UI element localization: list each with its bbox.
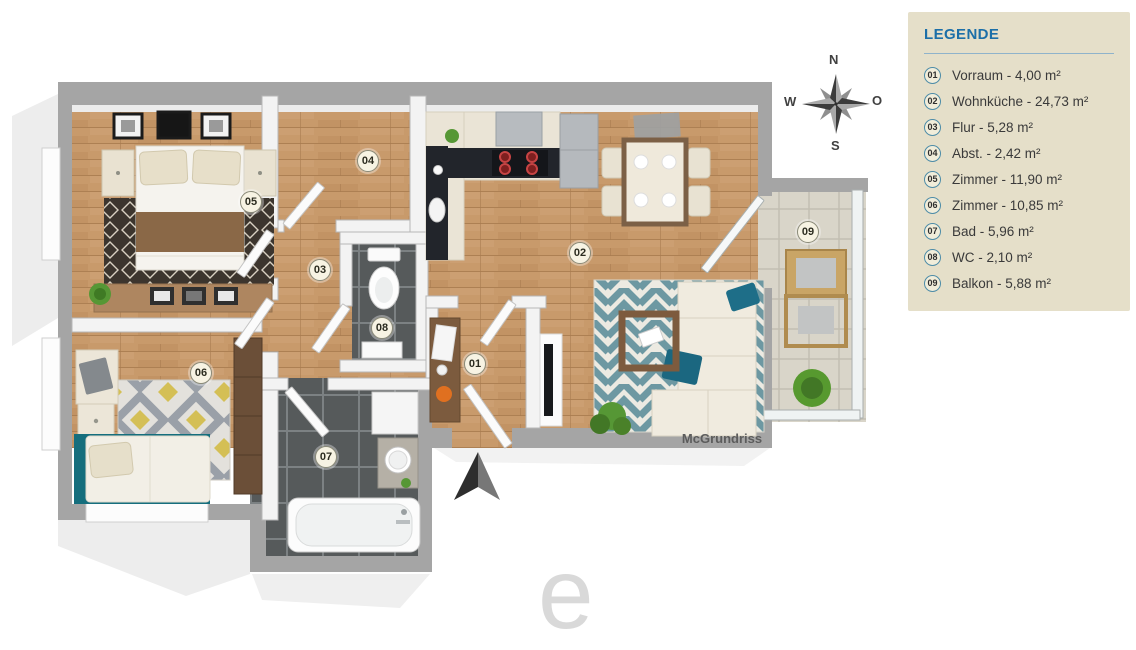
legend-item: 07 Bad - 5,96 m² [924, 223, 1114, 240]
compass-south-label: S [831, 138, 840, 153]
legend-item: 01 Vorraum - 4,00 m² [924, 67, 1114, 84]
room-badge-06: 06 [190, 362, 212, 384]
kitchen-sink [429, 198, 445, 222]
legend-label: Zimmer - 11,90 m² [952, 172, 1062, 187]
legend-badge: 01 [924, 67, 941, 84]
legend-item: 08 WC - 2,10 m² [924, 249, 1114, 266]
single-bed [74, 434, 210, 504]
legend-badge: 07 [924, 223, 941, 240]
legend-panel: LEGENDE 01 Vorraum - 4,00 m² 02 Wohnküch… [908, 12, 1130, 311]
dining-table [624, 140, 686, 224]
fridge [560, 114, 598, 188]
legend-badge: 03 [924, 119, 941, 136]
bath-cabinet [372, 392, 418, 434]
legend-item: 06 Zimmer - 10,85 m² [924, 197, 1114, 214]
wall-brand-label: McGrundriss [682, 431, 762, 446]
compass-rose: N S W O [786, 56, 886, 152]
legend-label: Balkon - 5,88 m² [952, 276, 1051, 291]
legend-badge: 09 [924, 275, 941, 292]
bathtub [288, 498, 420, 552]
legend-badge: 04 [924, 145, 941, 162]
legend-item: 03 Flur - 5,28 m² [924, 119, 1114, 136]
legend-label: WC - 2,10 m² [952, 250, 1032, 265]
double-bed [136, 146, 244, 270]
room-badge-09: 09 [797, 221, 819, 243]
legend-label: Flur - 5,28 m² [952, 120, 1033, 135]
tv [544, 344, 553, 416]
legend-badge: 02 [924, 93, 941, 110]
legend-label: Wohnküche - 24,73 m² [952, 94, 1088, 109]
legend-badge: 05 [924, 171, 941, 188]
floorplan-page: { "legend": { "title": "LEGENDE", "items… [0, 0, 1136, 639]
legend-badge: 08 [924, 249, 941, 266]
room-badge-07: 07 [315, 446, 337, 468]
plant [401, 478, 411, 488]
legend-title: LEGENDE [924, 26, 1114, 43]
toilet-tank [368, 248, 400, 261]
room-badge-04: 04 [357, 150, 379, 172]
room-badge-02: 02 [569, 242, 591, 264]
compass-east-label: O [872, 93, 882, 108]
legend-label: Bad - 5,96 m² [952, 224, 1034, 239]
compass-north-label: N [829, 52, 838, 67]
legend-item: 09 Balkon - 5,88 m² [924, 275, 1114, 292]
doormat [633, 112, 681, 139]
legend-label: Zimmer - 10,85 m² [952, 198, 1063, 213]
legend-item: 02 Wohnküche - 24,73 m² [924, 93, 1114, 110]
wall-pictures [114, 112, 230, 138]
room-badge-03: 03 [309, 259, 331, 281]
room-badge-01: 01 [464, 353, 486, 375]
decor [436, 386, 452, 402]
plant [445, 129, 459, 143]
legend-item: 05 Zimmer - 11,90 m² [924, 171, 1114, 188]
legend-label: Abst. - 2,42 m² [952, 146, 1041, 161]
dresser [94, 284, 272, 312]
room-01-vorraum [430, 318, 460, 422]
room-badge-08: 08 [371, 317, 393, 339]
watermark-letter: e [538, 544, 594, 644]
wc-sink [362, 342, 402, 358]
compass-west-label: W [784, 94, 796, 109]
legend-divider [924, 53, 1114, 54]
legend-label: Vorraum - 4,00 m² [952, 68, 1061, 83]
room-badge-05: 05 [240, 191, 262, 213]
range-hood [496, 112, 542, 146]
legend-badge: 06 [924, 197, 941, 214]
legend-item: 04 Abst. - 2,42 m² [924, 145, 1114, 162]
